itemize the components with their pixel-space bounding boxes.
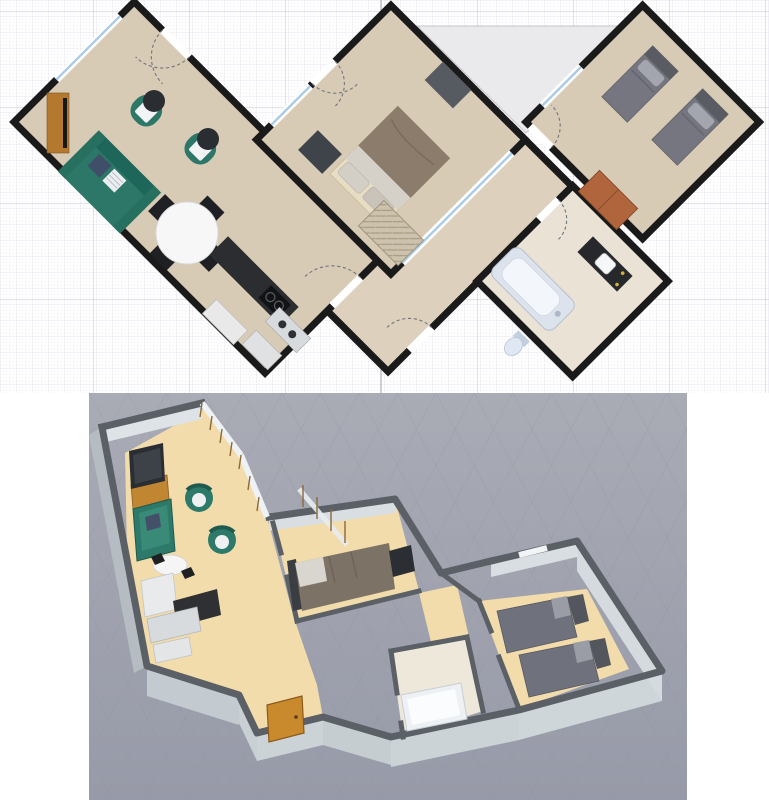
tv-stand-2d[interactable] — [47, 93, 69, 153]
view-3d-canvas[interactable] — [89, 393, 687, 800]
tv-3d — [129, 443, 169, 509]
side-table-2d[interactable] — [197, 128, 219, 150]
plan-2d-canvas[interactable] — [0, 0, 769, 393]
armchair-3d — [185, 484, 213, 512]
armchair-3d — [208, 526, 236, 554]
side-table-2d[interactable] — [143, 90, 165, 112]
floor-plan-app — [0, 0, 769, 800]
tv-2d — [63, 98, 67, 148]
dining-table-2d — [156, 202, 218, 264]
sofa-3d — [133, 499, 175, 561]
